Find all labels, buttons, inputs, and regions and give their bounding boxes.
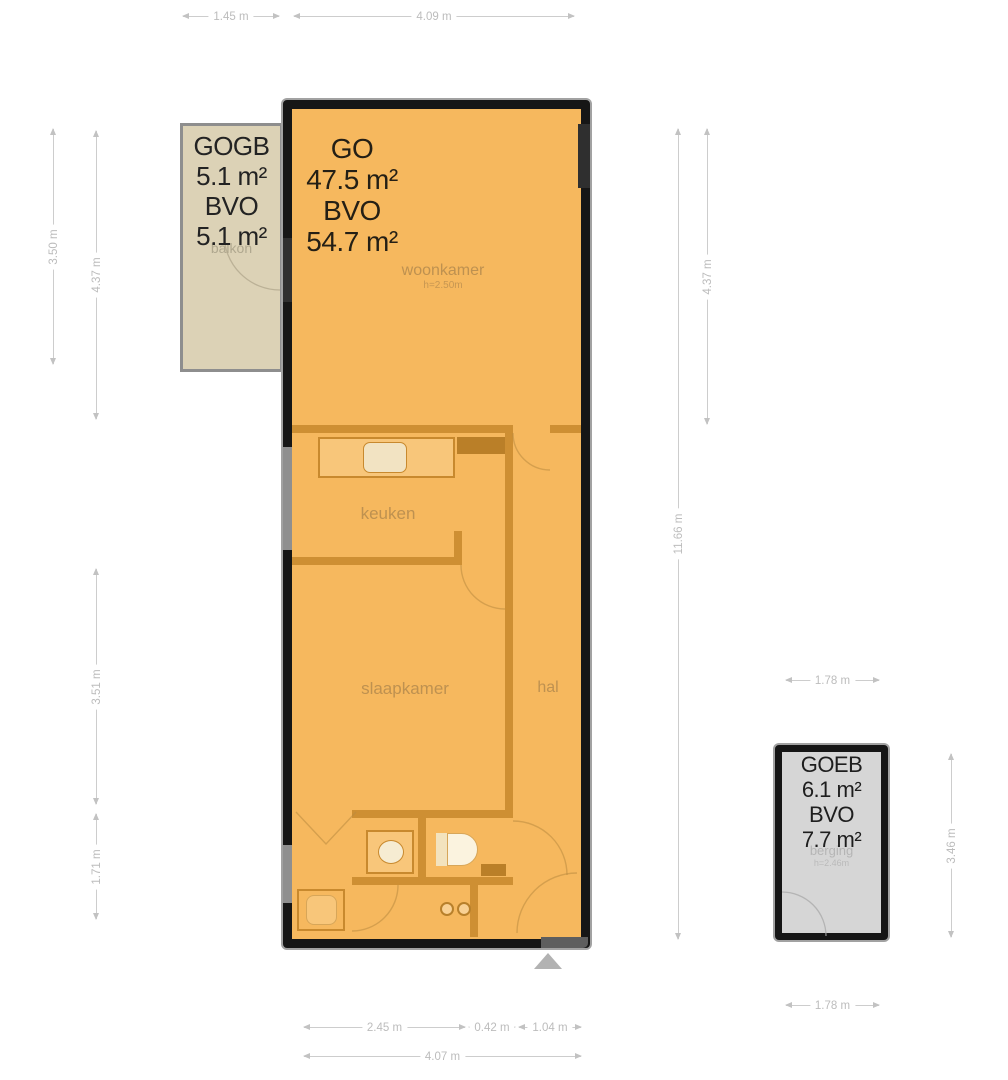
main-bvo-label: BVO <box>292 195 412 226</box>
door-arc-slaapkamer <box>461 565 505 609</box>
dimension-storage-bottom: 1.78 m <box>785 1000 880 1012</box>
dim-arrow-left-icon <box>785 677 792 683</box>
dimension-bottom-seg3: 1.04 m <box>518 1022 582 1034</box>
dim-arrow-right-icon <box>575 1053 582 1059</box>
dimension-left-balcony: 3.50 m <box>48 128 60 365</box>
dimension-top-left: 1.45 m <box>182 11 280 23</box>
dimension-bottom-seg1: 2.45 m <box>303 1022 466 1034</box>
goeb-area: 6.1 m² <box>775 777 888 802</box>
dim-arrow-up-icon <box>948 753 954 760</box>
dimension-label: 4.09 m <box>411 11 456 23</box>
dimension-label: 1.45 m <box>208 11 253 23</box>
room-label-woonkamer: woonkamer h=2.50m <box>363 262 523 291</box>
dim-arrow-down-icon <box>93 413 99 420</box>
go-label: GO <box>292 133 412 164</box>
dimension-storage-top: 1.78 m <box>785 675 880 687</box>
room-label-hal: hal <box>513 679 583 697</box>
storage-area-block: GOEB 6.1 m² BVO 7.7 m² <box>775 752 888 852</box>
dim-arrow-right-icon <box>873 677 880 683</box>
balcony-bvo-area: 5.1 m² <box>180 221 283 251</box>
dim-arrow-left-icon <box>293 13 300 19</box>
dimension-label: 1.71 m <box>91 844 103 889</box>
door-arc-storage <box>782 892 826 936</box>
dimension-top-main: 4.09 m <box>293 11 575 23</box>
dimension-label: 1.04 m <box>527 1022 572 1034</box>
dimension-left-mid: 3.51 m <box>91 568 103 805</box>
berging-ceiling-height: h=2.46m <box>775 858 888 868</box>
dim-arrow-up-icon <box>50 128 56 135</box>
storage-bvo-area: 7.7 m² <box>775 827 888 852</box>
dim-arrow-up-icon <box>93 813 99 820</box>
floorplan-canvas: balkon GOGB 5.1 m² BVO 5.1 m² <box>0 0 1008 1080</box>
dim-arrow-left-icon <box>303 1024 310 1030</box>
dimension-right-upper: 4.37 m <box>702 128 714 425</box>
dimension-label: 1.78 m <box>810 675 855 687</box>
dimension-right-total: 11.66 m <box>673 128 685 940</box>
dim-arrow-left-icon <box>182 13 189 19</box>
dim-arrow-right-icon <box>575 1024 582 1030</box>
dim-arrow-down-icon <box>704 418 710 425</box>
balcony-bvo-label: BVO <box>180 191 283 221</box>
dim-arrow-up-icon <box>675 128 681 135</box>
storage-bvo-label: BVO <box>775 802 888 827</box>
dim-arrow-down-icon <box>675 933 681 940</box>
dimension-label: 4.07 m <box>420 1051 465 1063</box>
room-label-keuken: keuken <box>328 504 448 524</box>
dim-arrow-right-icon <box>873 1002 880 1008</box>
door-arc-entrance <box>517 873 577 933</box>
goeb-label: GOEB <box>775 752 888 777</box>
dim-arrow-left-icon <box>785 1002 792 1008</box>
balcony-area-block: GOGB 5.1 m² BVO 5.1 m² <box>180 131 283 251</box>
door-arcs-overlay <box>0 0 1008 1080</box>
dim-arrow-down-icon <box>50 358 56 365</box>
dimension-label: 3.51 m <box>91 664 103 709</box>
dimension-label: 0.42 m <box>469 1022 514 1034</box>
dim-arrow-right-icon <box>568 13 575 19</box>
door-arc-toilet <box>513 821 567 875</box>
dimension-left-upper: 4.37 m <box>91 130 103 420</box>
dimension-label: 3.46 m <box>946 823 958 868</box>
gogb-area: 5.1 m² <box>180 161 283 191</box>
dim-arrow-up-icon <box>704 128 710 135</box>
dim-arrow-left-icon <box>518 1024 525 1030</box>
dimension-bottom-total: 4.07 m <box>303 1051 582 1063</box>
door-arc-badkamer <box>352 885 398 931</box>
dimension-bottom-seg2: 0.42 m <box>468 1022 516 1034</box>
door-arc-hal <box>513 433 550 470</box>
dim-arrow-up-icon <box>93 568 99 575</box>
dimension-left-lower: 1.71 m <box>91 813 103 920</box>
dim-arrow-left-icon <box>303 1053 310 1059</box>
dimension-label: 2.45 m <box>362 1022 407 1034</box>
woonkamer-ceiling-height: h=2.50m <box>363 280 523 291</box>
gogb-label: GOGB <box>180 131 283 161</box>
dimension-label: 11.66 m <box>673 509 685 560</box>
room-label-slaapkamer: slaapkamer <box>330 679 480 699</box>
dim-arrow-down-icon <box>948 931 954 938</box>
woonkamer-name: woonkamer <box>363 262 523 280</box>
dim-arrow-right-icon <box>273 13 280 19</box>
dimension-label: 4.37 m <box>91 252 103 297</box>
main-bvo-area: 54.7 m² <box>292 226 412 257</box>
dimension-storage-right: 3.46 m <box>946 753 958 938</box>
dim-arrow-down-icon <box>93 798 99 805</box>
dim-arrow-right-icon <box>459 1024 466 1030</box>
main-area-block: GO 47.5 m² BVO 54.7 m² <box>292 133 412 257</box>
dimension-label: 4.37 m <box>702 254 714 299</box>
dimension-label: 3.50 m <box>48 224 60 269</box>
dim-arrow-down-icon <box>93 913 99 920</box>
dim-arrow-up-icon <box>93 130 99 137</box>
closet-bifold-doors <box>296 812 356 844</box>
dimension-label: 1.78 m <box>810 1000 855 1012</box>
go-area: 47.5 m² <box>292 164 412 195</box>
